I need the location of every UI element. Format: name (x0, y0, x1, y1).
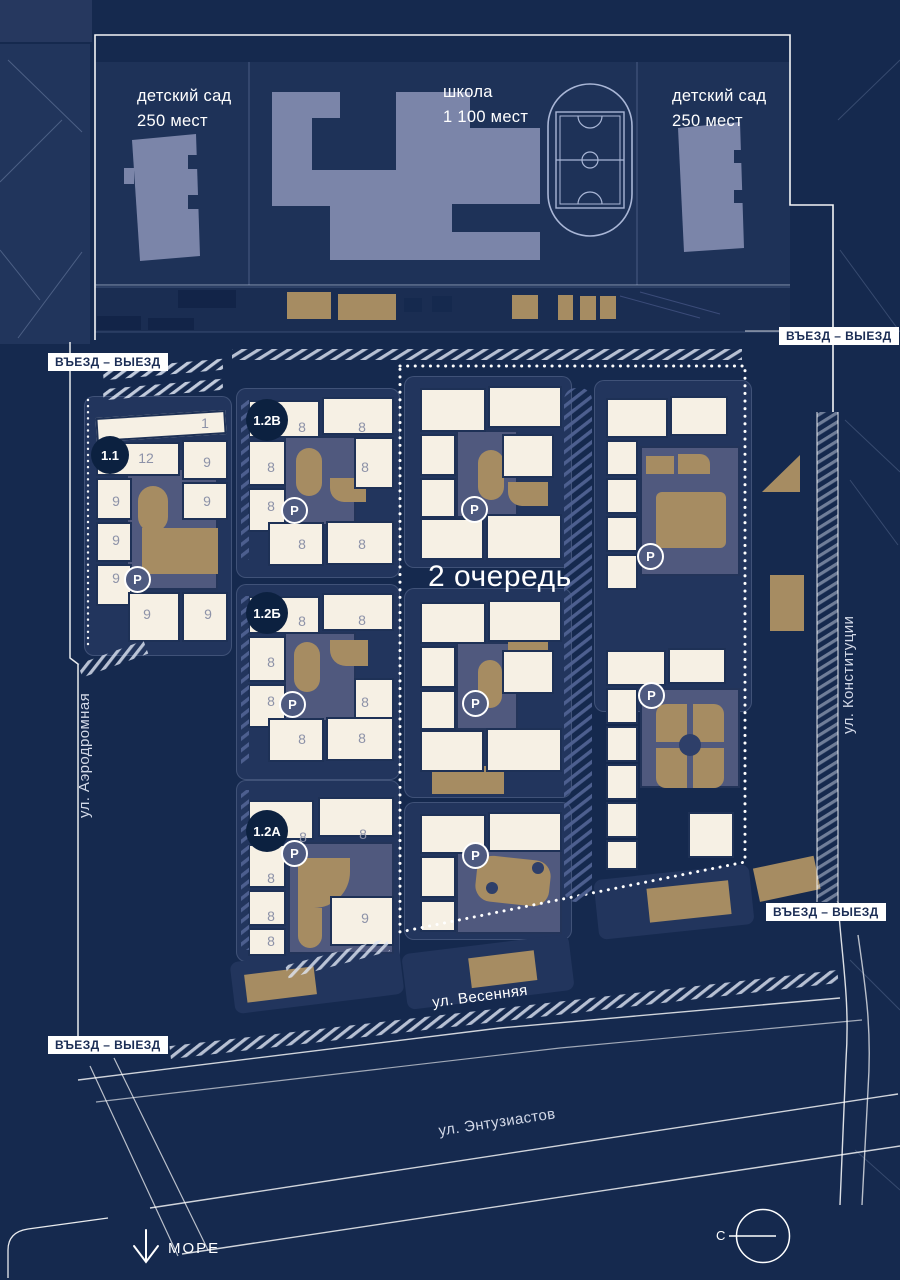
playground (298, 908, 322, 948)
context-block (0, 0, 92, 42)
building[interactable] (420, 856, 456, 898)
parking-icon: P (281, 497, 308, 524)
floor-count: 8 (290, 613, 314, 629)
context-block (0, 44, 90, 344)
parking-icon: P (124, 566, 151, 593)
building[interactable] (486, 514, 562, 560)
floor-count: 1 (193, 415, 217, 431)
floor-count: 9 (135, 606, 159, 622)
floor-count: 8 (350, 730, 374, 746)
building[interactable] (606, 764, 638, 800)
building[interactable] (606, 840, 638, 870)
building[interactable] (502, 650, 554, 694)
entrance-exit-label-top-right: ВЪЕЗД – ВЫЕЗД (779, 327, 899, 345)
playground (294, 642, 320, 692)
building[interactable] (420, 602, 486, 644)
entrance-exit-label-bottom-right: ВЪЕЗД – ВЫЕЗД (766, 903, 886, 921)
building[interactable] (488, 386, 562, 428)
building[interactable] (420, 434, 456, 476)
playground (646, 456, 674, 474)
building[interactable] (420, 690, 456, 730)
floor-count: 8 (351, 826, 375, 842)
playground (508, 482, 548, 506)
building[interactable] (488, 600, 562, 642)
floor-count: 9 (196, 606, 220, 622)
street-label-aerodromnaya: ул. Аэродромная (76, 692, 93, 818)
building[interactable] (606, 726, 638, 762)
floor-count: 8 (353, 694, 377, 710)
building[interactable] (486, 728, 562, 772)
building[interactable] (420, 478, 456, 518)
floor-count: 8 (350, 419, 374, 435)
playground-triangle (762, 455, 800, 492)
building[interactable] (420, 900, 456, 932)
floor-count: 8 (350, 536, 374, 552)
floor-count: 8 (259, 498, 283, 514)
building[interactable] (606, 688, 638, 724)
building[interactable] (606, 478, 638, 514)
floor-count: 8 (259, 459, 283, 475)
floor-count: 9 (195, 454, 219, 470)
floor-count: 8 (353, 459, 377, 475)
building[interactable] (420, 518, 484, 560)
block-badge-1-2v[interactable]: 1.2В (246, 399, 288, 441)
floor-count: 9 (353, 910, 377, 926)
floor-count: 8 (259, 654, 283, 670)
floor-count: 9 (195, 493, 219, 509)
parking-icon: P (279, 691, 306, 718)
parking-icon: P (281, 840, 308, 867)
building[interactable] (502, 434, 554, 478)
floor-count: 9 (104, 532, 128, 548)
parking-icon: P (637, 543, 664, 570)
masterplan-map: 1 12 9 9 9 9 9 9 9 1.1 P 8 8 8 8 8 8 8 1… (0, 0, 900, 1280)
floor-count: 8 (290, 419, 314, 435)
playground (296, 448, 322, 496)
floor-count: 12 (134, 450, 158, 466)
playground-dot (486, 882, 498, 894)
playground (678, 454, 710, 474)
floor-count: 9 (104, 493, 128, 509)
block-badge-1-1[interactable]: 1.1 (91, 436, 129, 474)
phase2-label: 2 очередь (428, 560, 572, 594)
block-badge-1-2b[interactable]: 1.2Б (246, 592, 288, 634)
building[interactable] (606, 554, 638, 590)
parking-icon: P (462, 690, 489, 717)
floor-count: 8 (350, 612, 374, 628)
kindergarten-right-building (678, 122, 744, 252)
entrance-exit-label-left: ВЪЕЗД – ВЫЕЗД (48, 353, 168, 371)
playground (138, 486, 168, 532)
fountain (679, 734, 701, 756)
building[interactable] (606, 650, 666, 686)
playground (142, 528, 218, 574)
building[interactable] (668, 648, 726, 684)
building[interactable] (420, 730, 484, 772)
parking-icon: P (638, 682, 665, 709)
floor-count: 8 (259, 908, 283, 924)
building[interactable] (420, 646, 456, 688)
building[interactable] (606, 398, 668, 438)
playground-dot (532, 862, 544, 874)
kindergarten-right-label: детский сад 250 мест (672, 84, 766, 134)
building[interactable] (606, 802, 638, 838)
building[interactable] (606, 440, 638, 476)
floor-count: 8 (290, 731, 314, 747)
floor-count: 8 (259, 870, 283, 886)
playground (478, 450, 504, 500)
block-badge-1-2a[interactable]: 1.2А (246, 810, 288, 852)
building[interactable] (420, 388, 486, 432)
floor-count: 8 (290, 536, 314, 552)
school-label: школа 1 100 мест (443, 80, 528, 130)
parking-icon: P (462, 842, 489, 869)
building[interactable] (606, 516, 638, 552)
building[interactable] (488, 812, 562, 852)
parking-icon: P (461, 496, 488, 523)
street-label-konstitutsii: ул. Конституции (840, 616, 857, 734)
playground (330, 640, 368, 666)
playground (656, 492, 726, 548)
kindergarten-left-label: детский сад 250 мест (137, 84, 231, 134)
floor-count: 8 (259, 933, 283, 949)
north-label: С (716, 1228, 725, 1243)
entrance-exit-label-bottom-left: ВЪЕЗД – ВЫЕЗД (48, 1036, 168, 1054)
building[interactable] (688, 812, 734, 858)
sea-label: МОРЕ (168, 1240, 220, 1257)
building[interactable] (670, 396, 728, 436)
